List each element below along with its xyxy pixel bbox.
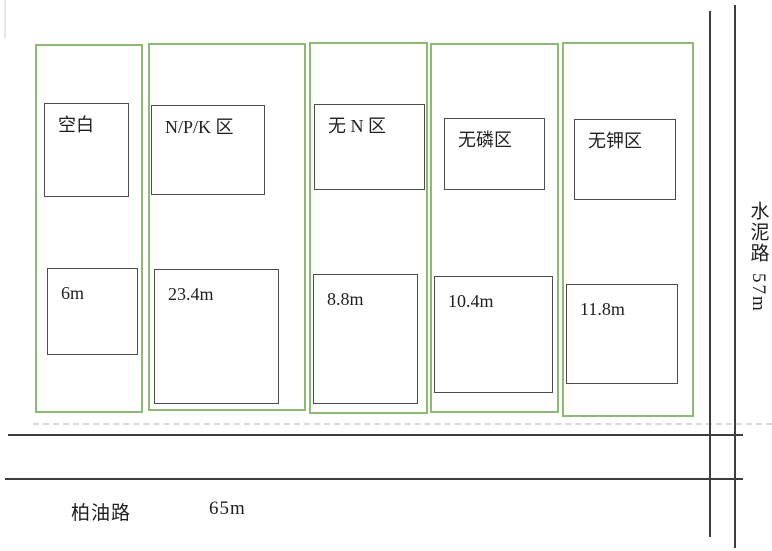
plot-no-p-size-box: 10.4m	[434, 276, 553, 393]
plot-no-k: 无钾区 11.8m	[562, 42, 694, 417]
cement-road-inner-line	[709, 11, 711, 537]
plot-no-p-label: 无磷区	[458, 130, 512, 150]
cement-road-label: 水泥路	[745, 201, 772, 264]
plot-no-n-label: 无 N 区	[328, 116, 386, 136]
plot-no-p: 无磷区 10.4m	[430, 43, 559, 413]
plot-npk-size: 23.4m	[168, 284, 214, 304]
plot-npk-label: N/P/K 区	[165, 117, 234, 137]
plot-no-n-size-box: 8.8m	[313, 274, 418, 404]
plot-no-k-label: 无钾区	[588, 131, 642, 151]
cement-road-label-group: 水泥路 57m	[746, 201, 770, 313]
plot-npk-size-box: 23.4m	[154, 269, 279, 404]
plot-blank-label: 空白	[58, 115, 94, 135]
plot-npk-label-box: N/P/K 区	[151, 105, 265, 195]
field-experiment-diagram: 空白 6m N/P/K 区 23.4m 无 N 区 8.8m 无磷区 10.4m	[0, 0, 772, 551]
plot-no-n: 无 N 区 8.8m	[309, 42, 428, 414]
plot-no-k-size: 11.8m	[580, 299, 625, 319]
plot-no-p-size: 10.4m	[448, 291, 494, 311]
plot-npk: N/P/K 区 23.4m	[148, 43, 306, 411]
plot-no-n-size: 8.8m	[327, 289, 364, 309]
plot-no-p-label-box: 无磷区	[444, 118, 545, 190]
plot-blank: 空白 6m	[35, 44, 143, 413]
asphalt-road-length: 65m	[209, 498, 246, 525]
asphalt-road-inner-line	[8, 434, 743, 436]
plot-no-k-label-box: 无钾区	[574, 119, 676, 200]
asphalt-road-label-group: 柏油路 65m	[71, 498, 246, 525]
plot-no-n-label-box: 无 N 区	[314, 104, 425, 190]
cement-road-length: 57m	[747, 273, 769, 313]
asphalt-road-outer-line	[5, 478, 743, 480]
plot-blank-size: 6m	[61, 283, 84, 303]
plot-no-k-size-box: 11.8m	[566, 284, 678, 384]
asphalt-road-label: 柏油路	[71, 498, 131, 525]
cement-road-outer-line	[734, 5, 736, 548]
plot-blank-size-box: 6m	[47, 268, 138, 355]
plot-blank-label-box: 空白	[44, 103, 129, 197]
scan-edge-artifact	[4, 0, 6, 38]
plot-bottom-faint-line	[33, 423, 772, 425]
